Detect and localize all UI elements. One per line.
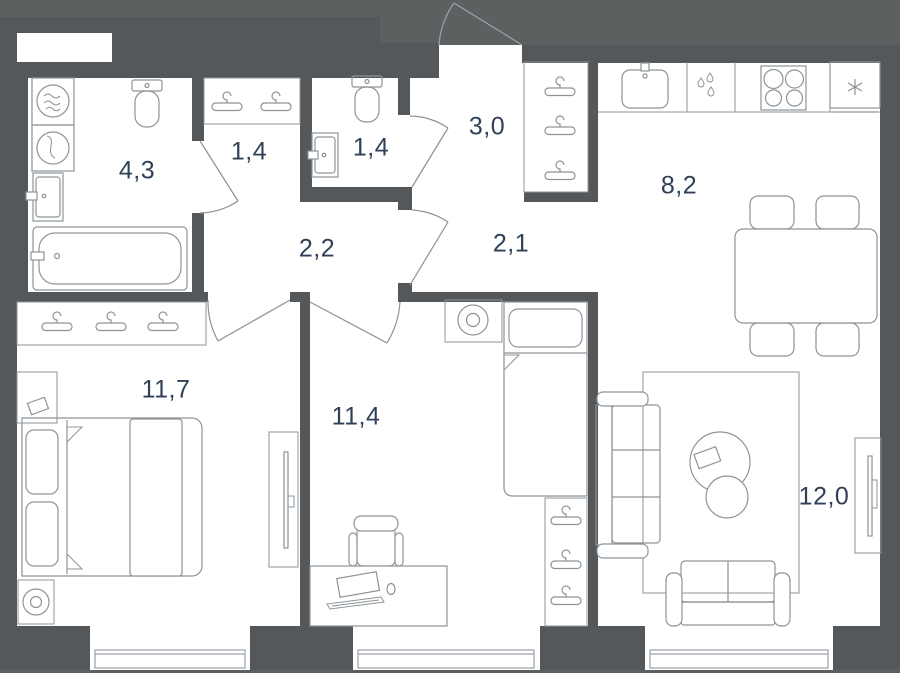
window-opening-1 bbox=[90, 626, 250, 670]
wall-hall-kitchen bbox=[588, 58, 598, 202]
room-label-kitchen: 8,2 bbox=[661, 172, 697, 201]
wall-closet-wc bbox=[300, 62, 312, 202]
room-label-hallway-left: 2,2 bbox=[299, 235, 335, 264]
wall-wc-right-upper bbox=[398, 62, 410, 115]
room-label-hallway-inner: 2,1 bbox=[493, 230, 529, 259]
room-label-closet: 1,4 bbox=[231, 138, 267, 167]
room-label-bedroom: 11,7 bbox=[142, 376, 191, 405]
room-label-hallway-entry: 3,0 bbox=[469, 113, 505, 142]
entrance-door-swing-icon bbox=[439, 3, 522, 45]
room-label-bathroom: 4,3 bbox=[119, 157, 155, 186]
wall-mid-left bbox=[0, 292, 208, 302]
exterior-notch bbox=[17, 33, 112, 62]
wall-bath-closet-lower bbox=[192, 213, 204, 302]
wall-hall-closet-stub bbox=[524, 192, 598, 202]
floor-plan-drawing bbox=[0, 0, 900, 673]
room-label-kids-room: 11,4 bbox=[332, 403, 381, 432]
wall-wc-bottom bbox=[300, 187, 412, 202]
wall-right bbox=[880, 45, 900, 670]
wall-bath-top bbox=[17, 62, 412, 78]
wall-wc-right-pier bbox=[398, 187, 412, 210]
window-opening-3 bbox=[645, 626, 833, 670]
window-opening-2 bbox=[353, 626, 540, 670]
wall-top-right bbox=[522, 45, 880, 63]
wall-left bbox=[0, 17, 17, 670]
floor-plan: 4,3 1,4 1,4 3,0 2,1 2,2 8,2 11,7 11,4 12… bbox=[0, 0, 900, 673]
room-label-living-room: 12,0 bbox=[799, 483, 850, 512]
wall-bath-closet-upper bbox=[192, 78, 204, 141]
room-label-wc: 1,4 bbox=[353, 134, 389, 163]
wall-bedroom-kidsroom bbox=[300, 292, 310, 626]
wall-bath-left bbox=[17, 62, 28, 292]
entrance-opening bbox=[439, 45, 522, 63]
desk-icon bbox=[310, 566, 447, 626]
